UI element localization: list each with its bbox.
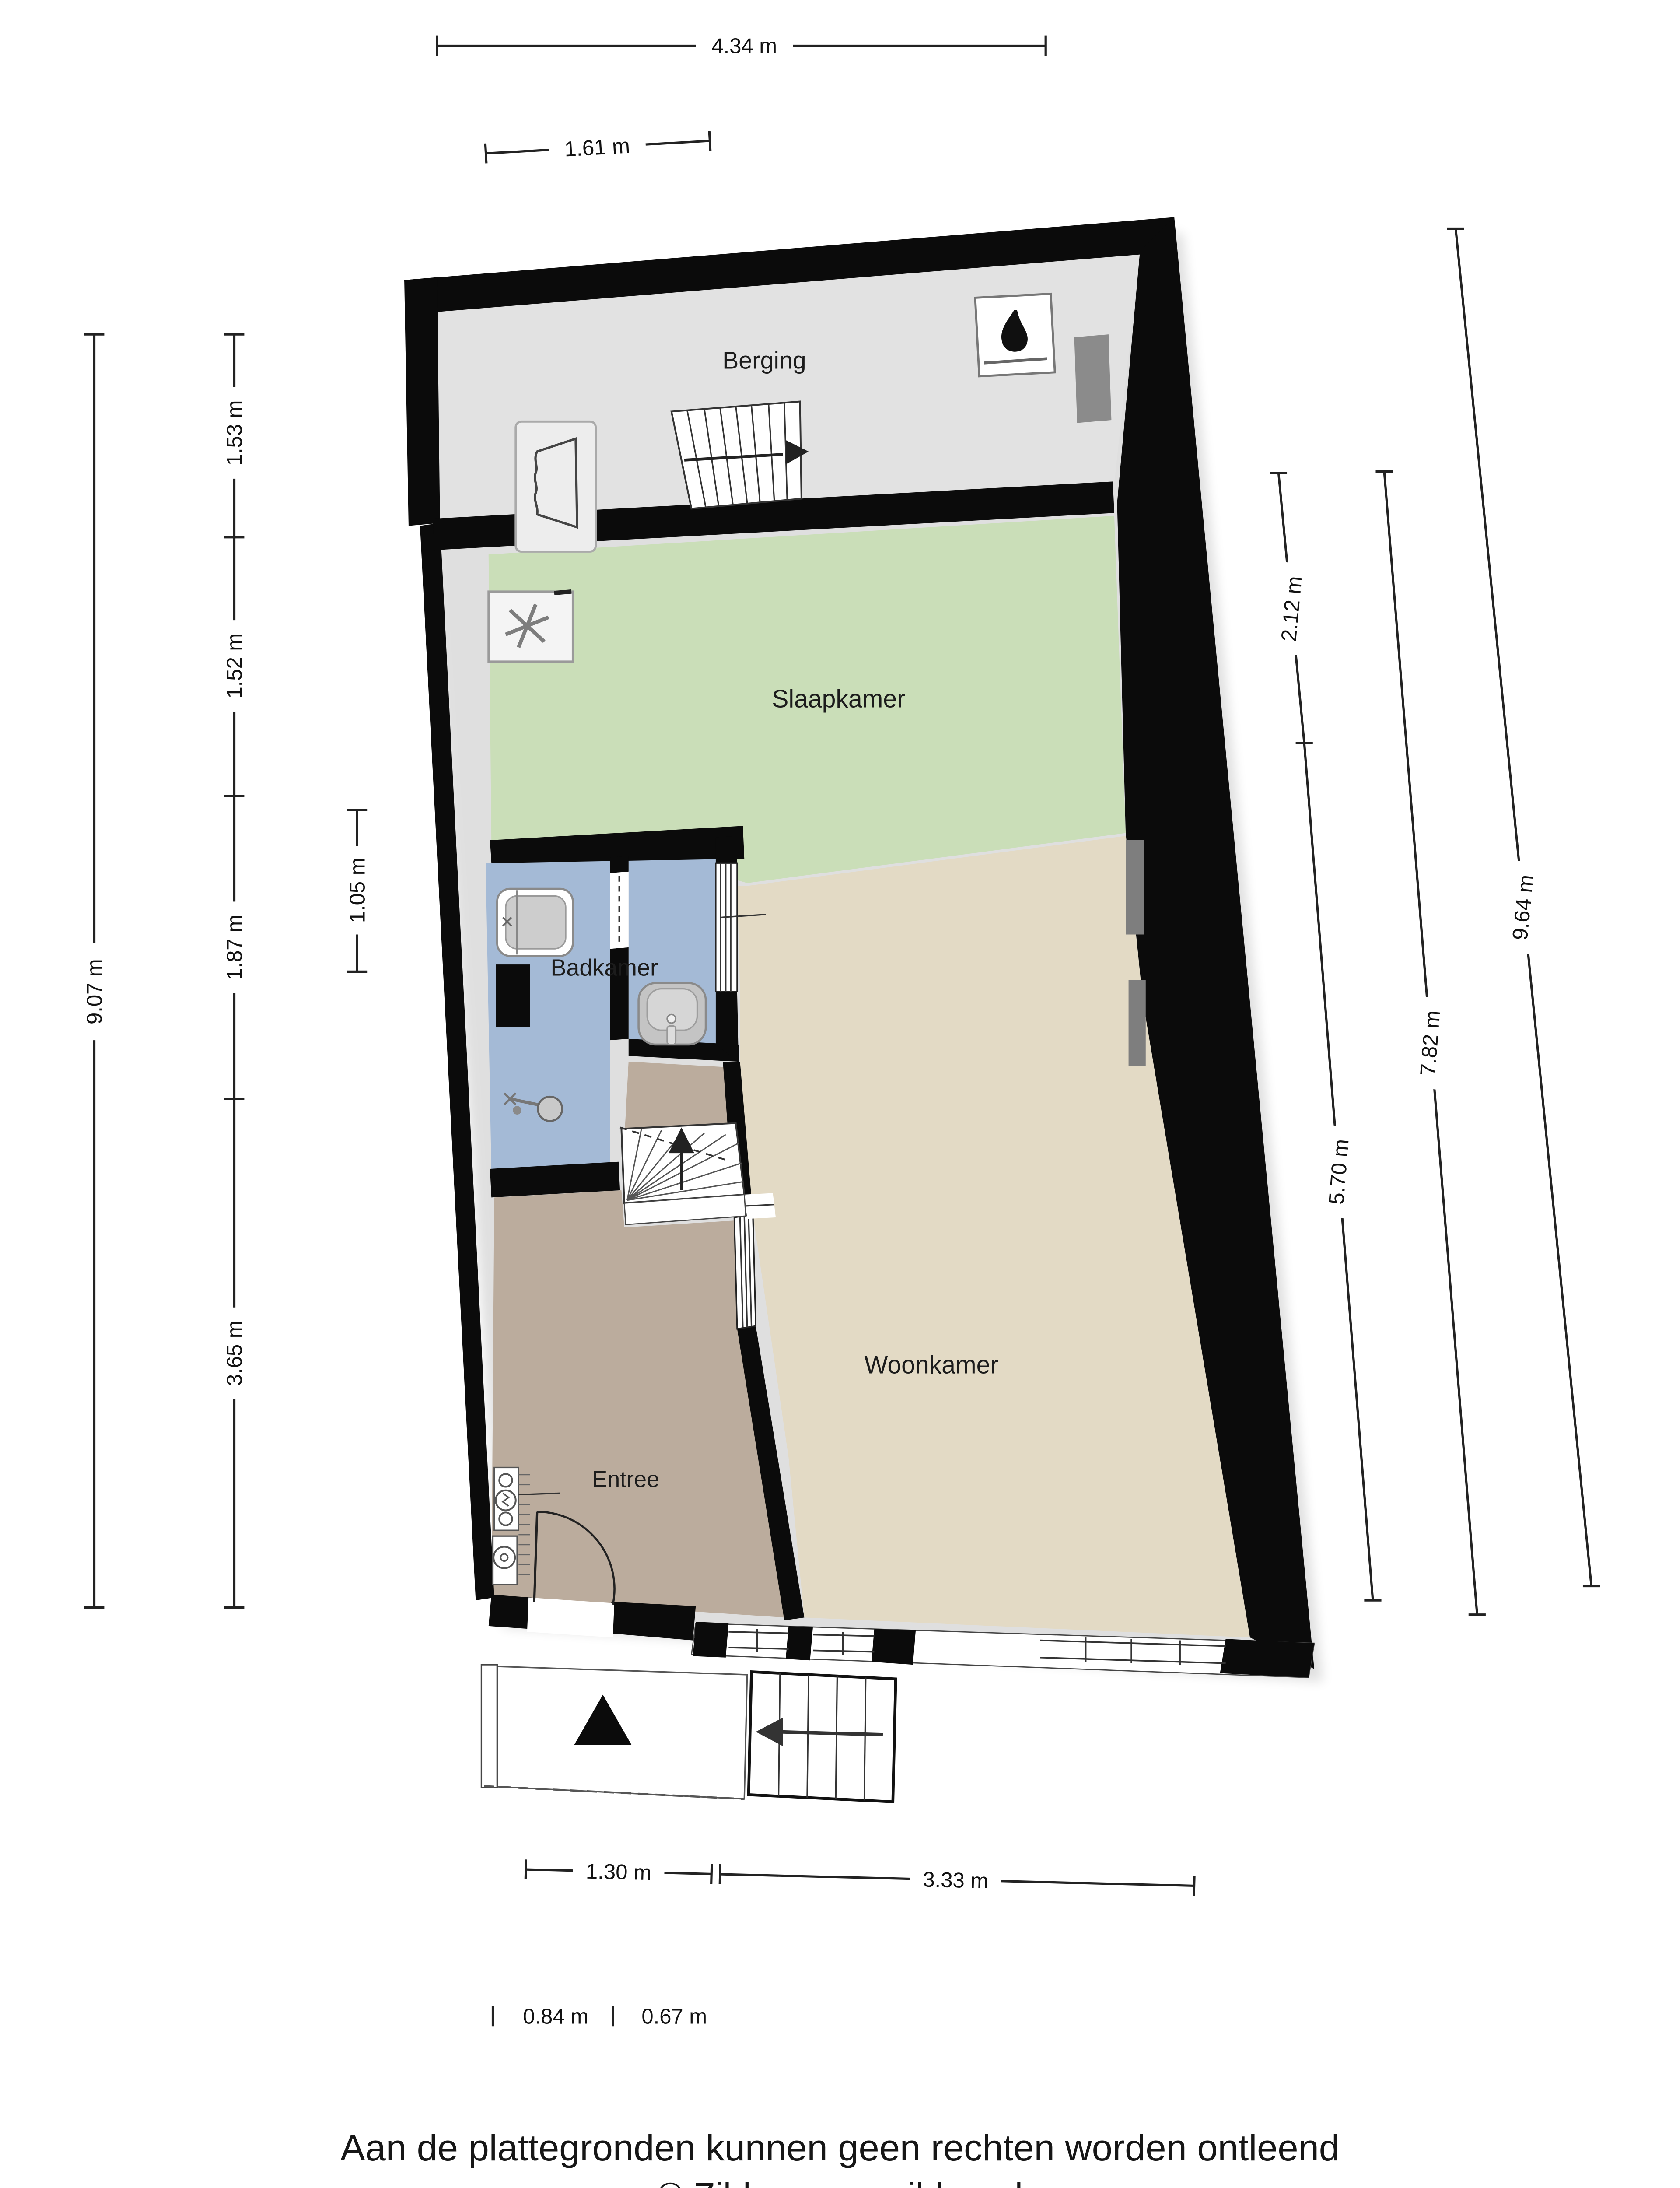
- wall-badkamer-toilet-upper: [610, 856, 628, 873]
- footer-disclaimer: Aan de plattegronden kunnen geen rechten…: [340, 2127, 1340, 2168]
- dimension-left-187: 1.87 m: [223, 915, 247, 980]
- dimension-bottom-067: 0.67 m: [641, 2005, 707, 2028]
- dimension-bottom-130: 1.30 m: [525, 1854, 712, 1890]
- dimension-right-212: 2.12 m: [1270, 473, 1313, 743]
- svg-text:4.34 m: 4.34 m: [711, 35, 777, 58]
- dimension-top-434: 4.34 m: [437, 28, 1046, 63]
- entrance-porch: [481, 1665, 747, 1799]
- dimension-left-152: 1.52 m: [223, 633, 247, 699]
- dimension-right-964: 9.64 m: [1447, 228, 1600, 1586]
- shaft-block: [496, 964, 530, 1027]
- wall-above-toilet-window: [716, 836, 737, 864]
- roof-strip: [1074, 334, 1112, 423]
- dimension-left-153: 1.53 m: [223, 400, 247, 466]
- dimension-bottom-row: 1.30 m 3.33 m: [525, 1854, 1194, 1901]
- label-badkamer: Badkamer: [550, 954, 658, 981]
- hall-woonkamer-window: [734, 1215, 756, 1329]
- dimension-right-782: 7.82 m: [1375, 472, 1485, 1615]
- label-berging: Berging: [722, 347, 806, 374]
- front-pier-corner: [1220, 1639, 1315, 1677]
- dimension-left-chain: 1.53 m 1.52 m 1.87 m 3.65 m: [214, 334, 254, 1607]
- dimension-right-570: 5.70 m: [1304, 743, 1381, 1600]
- label-entree: Entree: [592, 1467, 659, 1492]
- svg-text:1.05 m: 1.05 m: [346, 857, 369, 923]
- footer-copyright: © Zibber www.zibber.nl: [657, 2176, 1023, 2188]
- dimension-bottom-smalls: 0.84 m 0.67 m: [493, 2005, 707, 2028]
- front-pier-2: [786, 1626, 813, 1660]
- boiler-icon: [975, 294, 1055, 376]
- svg-text:3.33 m: 3.33 m: [923, 1868, 989, 1893]
- svg-text:1.30 m: 1.30 m: [586, 1860, 652, 1885]
- front-pier-3: [871, 1629, 916, 1665]
- right-wall-recess-2: [1129, 980, 1146, 1066]
- footer: Aan de plattegronden kunnen geen rechten…: [340, 2127, 1340, 2188]
- dimension-top-161: 1.61 m: [485, 125, 711, 169]
- wall-front-entree-left: [489, 1595, 532, 1629]
- label-slaapkamer: Slaapkamer: [772, 685, 905, 713]
- svg-text:9.07 m: 9.07 m: [83, 959, 107, 1024]
- label-woonkamer: Woonkamer: [864, 1351, 999, 1379]
- dimension-bottom-084: 0.84 m: [523, 2005, 588, 2028]
- wardrobe-icon: [516, 421, 596, 551]
- fan-icon: [489, 592, 573, 662]
- right-wall-recess-1: [1126, 840, 1144, 935]
- dimension-left-907: 9.07 m: [74, 334, 114, 1607]
- floor-plan-canvas: Berging Slaapkamer Badkamer Woonkamer En…: [0, 0, 1680, 2188]
- dimension-left-365: 3.65 m: [223, 1320, 247, 1386]
- dimension-bottom-333: 3.33 m: [720, 1858, 1195, 1901]
- winder-staircase-icon: [620, 1123, 745, 1225]
- sink-icon: [639, 983, 706, 1045]
- front-pier-1: [693, 1622, 729, 1658]
- badkamer-door: [610, 872, 628, 949]
- bathtub-icon: [497, 889, 573, 956]
- svg-text:1.61 m: 1.61 m: [564, 134, 630, 161]
- porch-side-wall: [481, 1665, 497, 1788]
- wall-left-upper: [404, 277, 440, 526]
- exterior-staircase-icon: [749, 1672, 896, 1802]
- staircase-up-icon: [672, 402, 808, 509]
- hall-woonkamer-opening: [744, 1193, 776, 1219]
- dimension-left-105: 1.05 m: [337, 810, 377, 971]
